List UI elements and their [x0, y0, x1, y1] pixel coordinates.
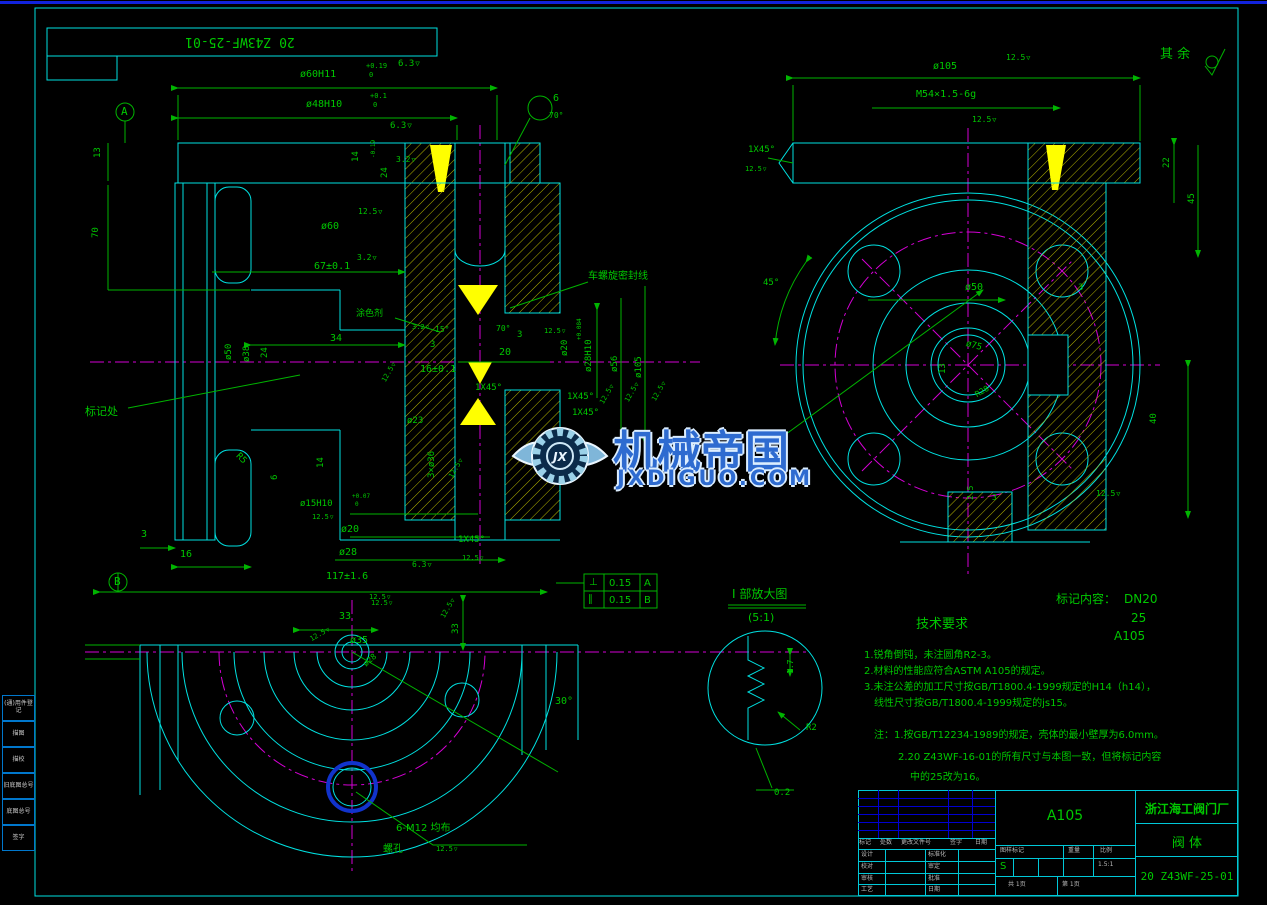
sheet-total: 共 1页 [1008, 882, 1026, 888]
dim-label: 0 [373, 102, 377, 109]
dim-label: 3 [1078, 284, 1083, 293]
dim-label: ø15H10 [300, 500, 333, 509]
dim-label: 16 [180, 550, 192, 560]
dim-label: B [114, 576, 121, 587]
dim-label: 标记处 [85, 406, 118, 417]
rev-col-label: 日期 [975, 840, 987, 846]
rev-col-label: 处数 [880, 840, 892, 846]
sheet-number: 第 1页 [1062, 882, 1080, 888]
margin-block: 旧底图总号 [2, 773, 35, 799]
rev-col-label: 签字 [950, 840, 962, 846]
dim-label: 45° [763, 279, 779, 288]
dim-label: ø105 [635, 356, 644, 378]
dim-label: +0.084 [577, 318, 583, 340]
dim-label: 3.2 [396, 156, 416, 164]
detail-view-title: Ⅰ 部放大图 [732, 588, 787, 602]
dim-label: 34 [330, 334, 342, 344]
dim-label: ø48H10 [306, 100, 342, 110]
margin-block: 底图总号 [2, 799, 35, 825]
dim-label: 70 [92, 227, 101, 238]
sign-label: 工艺 [861, 887, 873, 893]
gdt-ref-2: B [644, 595, 651, 607]
dim-label: 涂色剂 [356, 310, 383, 319]
dim-label: 2.5 [967, 486, 975, 500]
dim-label: 1X45° [475, 384, 502, 393]
dim-label: 0.2 [774, 789, 790, 798]
dim-label: 33 [452, 623, 461, 634]
gdt-sym-1: ⊥ [589, 577, 598, 589]
sign-label: 校对 [861, 864, 873, 870]
margin-block: 描校 [2, 747, 35, 773]
dim-label: 6.3 [412, 561, 432, 569]
stamp-col-label: 图样标记 [1000, 848, 1024, 854]
rev-col-label: 标记 [859, 840, 871, 846]
dim-label: 20 [499, 348, 511, 358]
dim-label: 13 [94, 147, 103, 158]
note-line: 中的25改为16。 [910, 772, 985, 784]
dim-label: 12.5 [358, 208, 382, 216]
dim-label: 12.5 [312, 514, 333, 521]
marking-label: 标记内容： [1056, 593, 1116, 607]
sign-label: 日期 [928, 887, 940, 893]
note-line: 注：1.按GB/T12234-1989的规定，壳体的最小壁厚为6.0mm。 [874, 730, 1164, 742]
dim-label: 12.5 [972, 116, 996, 124]
dim-label: M54×1.5-6g [916, 90, 976, 100]
dim-label: 1.7 [787, 660, 795, 674]
detail-view-scale: (5:1) [748, 612, 774, 625]
dim-label: 0 [355, 502, 359, 508]
watermark-site: JXDIGUO.COM [617, 466, 813, 490]
dim-label: 45 [1188, 193, 1197, 204]
cad-drawing-screen: ø60H11+0.1906.3ø48H10+0.106.3670°AB13701… [0, 0, 1267, 905]
dim-label: 12.5 [544, 328, 565, 335]
dim-label: ø35 [350, 636, 368, 646]
rev-col-label: 更改文件号 [901, 840, 931, 846]
surface-roughness-note: 其 余 [1160, 48, 1190, 63]
margin-block: (通)用件登记 [2, 695, 35, 721]
margin-block: 描图 [2, 721, 35, 747]
dim-label: 0 [369, 72, 373, 79]
dim-label: 6.3 [398, 60, 420, 69]
dim-label: 13 [939, 363, 948, 374]
margin-block: 签字 [2, 825, 35, 851]
dim-label: 3.2 [357, 254, 377, 262]
drawing-scale: 1.5:1 [1098, 862, 1113, 868]
dim-label: 12.5 [436, 846, 457, 853]
dim-label: 24 [381, 167, 390, 178]
dim-label: 螺孔 [383, 845, 403, 855]
dim-label: +0.1 [370, 93, 387, 100]
dim-label: 12.5 [745, 166, 766, 173]
dim-label: 70° [549, 112, 563, 120]
material-spec: A105 [995, 808, 1135, 824]
dim-label: ø20 [341, 525, 359, 535]
dim-label: 6.3 [390, 122, 412, 131]
dim-label: 15° [435, 326, 449, 334]
dim-label: ø56 [611, 356, 620, 372]
dim-label: 12.5 [1006, 54, 1030, 62]
marking-pn: 25 [1131, 612, 1146, 626]
dim-label: 40 [1150, 413, 1159, 424]
dim-label: ø50 [225, 344, 234, 360]
dim-label: A [121, 106, 128, 117]
dim-label: ø23 [407, 417, 423, 426]
dim-label: ø28 [339, 548, 357, 558]
dim-label: 70° [496, 325, 510, 333]
gdt-val-2: 0.15 [609, 595, 631, 607]
dim-label: ø20 [561, 340, 570, 356]
dim-label: R2 [806, 724, 817, 733]
top-title-box-text: 20 Z43WF-25-01 [60, 33, 420, 48]
stamp-mark: S [1000, 861, 1006, 872]
gdt-sym-2: ∥ [588, 594, 593, 606]
dim-label: 6-M12 均布 [396, 824, 451, 834]
dim-label: ø28H10 [585, 339, 594, 372]
dim-label: 14 [352, 151, 361, 162]
dim-label: 6 [271, 475, 280, 480]
dim-label: 6 [553, 94, 559, 104]
sign-label: 标准化 [928, 852, 946, 858]
dim-label: ø105 [933, 62, 957, 72]
svg-text:JX: JX [551, 450, 567, 464]
dim-label: 24 [261, 347, 270, 358]
drawing-number: 20 Z43WF-25-01 [1137, 870, 1237, 883]
dim-label: ø38 [243, 346, 252, 362]
dim-label: 1X45° [458, 536, 485, 545]
dim-label: 33 [339, 612, 351, 622]
dim-label: 3.2 [412, 324, 429, 331]
dim-label: 14 [317, 457, 326, 468]
gdt-ref-1: A [644, 578, 651, 590]
gdt-val-1: 0.15 [609, 578, 631, 590]
stamp-col-label: 比例 [1100, 848, 1112, 854]
marking-material: A105 [1114, 630, 1145, 644]
sign-label: 审核 [861, 876, 873, 882]
stamp-col-label: 重量 [1068, 848, 1080, 854]
note-line: 2.20 Z43WF-16-01的所有尺寸与本图一致，但将标记内容 [898, 752, 1161, 764]
dim-label: +0.07 [352, 494, 370, 500]
dim-label: 67±0.1 [314, 262, 350, 272]
dim-label: 车螺旋密封线 [588, 272, 648, 282]
dim-label: 3×ø36 [428, 451, 437, 478]
sign-label: 批准 [928, 876, 940, 882]
tech-req-line: 3.未注公差的加工尺寸按GB/T1800.4-1999规定的H14（h14）， [864, 682, 1156, 694]
dim-label: 12.5 [462, 555, 483, 562]
dim-label: +0.19 [366, 63, 387, 70]
sign-label: 设计 [861, 852, 873, 858]
tech-req-line: 线性尺寸按GB/T1800.4-1999规定的js15。 [874, 698, 1073, 710]
dim-label: 30° [555, 697, 573, 707]
dim-label: 16±0.1 [420, 365, 456, 375]
marking-dn: DN20 [1124, 593, 1158, 607]
dim-label: ø60 [321, 222, 339, 232]
dim-label: -0.19 [371, 140, 377, 158]
company-name: 浙江海工阀门厂 [1137, 800, 1237, 817]
sign-label: 审定 [928, 864, 940, 870]
dim-label: 22 [1163, 157, 1172, 168]
dim-label: 3 [517, 331, 522, 340]
dim-label: ø50 [965, 283, 983, 293]
tech-req-heading: 技术要求 [916, 618, 968, 633]
dim-label: 1X45° [748, 146, 775, 155]
watermark: JX 机械帝国 JXDIGUO.COM [505, 414, 835, 504]
part-name: 阀 体 [1137, 832, 1237, 851]
tech-req-line: 2.材料的性能应符合ASTM A105的规定。 [864, 666, 1051, 678]
dim-label: 3 [430, 341, 435, 350]
dim-label: 1X45° [567, 393, 594, 402]
tech-req-line: 1.锐角倒钝，未注圆角R2-3。 [864, 650, 997, 662]
dim-label: 3 [141, 530, 147, 540]
dim-label: 12.5 [1096, 490, 1120, 498]
dim-label: 117±1.6 [326, 572, 368, 582]
dim-label: ø60H11 [300, 70, 336, 80]
watermark-logo-gear-wings-icon: JX [505, 414, 615, 499]
dim-label: 3 [992, 494, 997, 502]
dim-label: 12.5 [371, 600, 392, 607]
